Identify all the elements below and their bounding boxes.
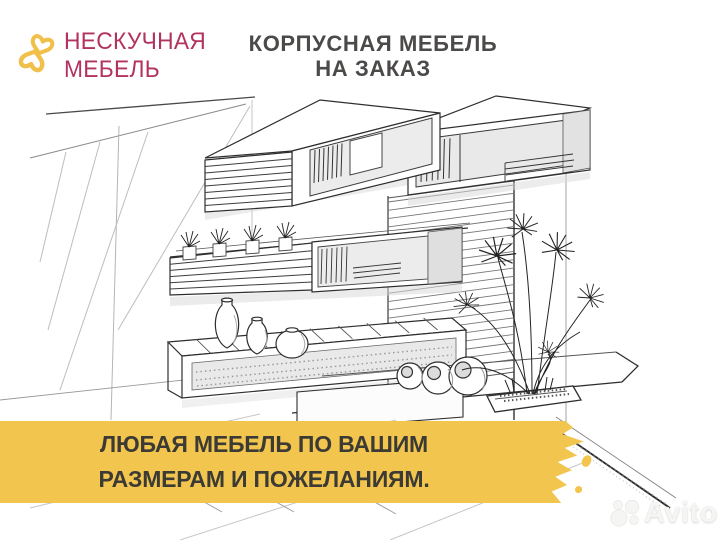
promo-banner-line1: ЛЮБАЯ МЕБЕЛЬ ПО ВАШИМ (0, 427, 528, 462)
company-logo: НЕСКУЧНАЯ МЕБЕЛЬ (10, 20, 214, 84)
promo-banner-text: ЛЮБАЯ МЕБЕЛЬ ПО ВАШИМ РАЗМЕРАМ И ПОЖЕЛАН… (0, 421, 528, 497)
upper-shelf (205, 100, 440, 212)
headline: КОРПУСНАЯ МЕБЕЛЬ НА ЗАКАЗ (233, 31, 513, 81)
avito-watermark: Avito (610, 496, 718, 530)
company-name-line2: МЕБЕЛЬ (64, 56, 206, 84)
avito-watermark-label: Avito (644, 497, 718, 530)
company-name: НЕСКУЧНАЯ МЕБЕЛЬ (64, 28, 206, 84)
company-name-line1: НЕСКУЧНАЯ (64, 28, 206, 56)
paint-splash (575, 486, 582, 493)
double-heart-monogram-icon (10, 20, 62, 82)
middle-shelf (170, 223, 470, 295)
headline-line1: КОРПУСНАЯ МЕБЕЛЬ (233, 31, 513, 56)
promo-banner-line2: РАЗМЕРАМ И ПОЖЕЛАНИЯМ. (0, 462, 528, 497)
sphere-ornaments (397, 357, 487, 395)
promo-banner: ЛЮБАЯ МЕБЕЛЬ ПО ВАШИМ РАЗМЕРАМ И ПОЖЕЛАН… (0, 421, 592, 503)
avito-logo-icon (610, 496, 642, 530)
headline-line2: НА ЗАКАЗ (233, 56, 513, 81)
ad-image: НЕСКУЧНАЯ МЕБЕЛЬ КОРПУСНАЯ МЕБЕЛЬ НА ЗАК… (0, 0, 720, 540)
